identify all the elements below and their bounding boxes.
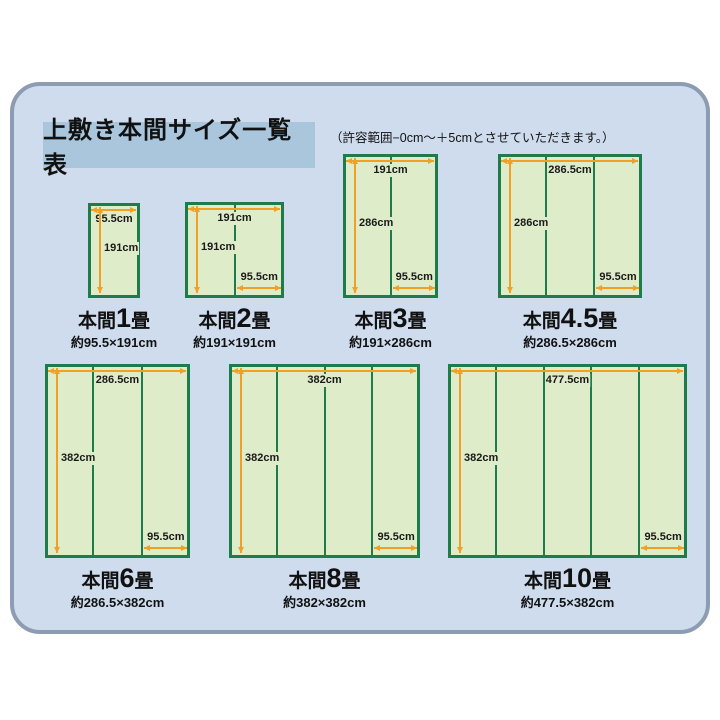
height-arrow <box>354 158 356 293</box>
mat-size-label: 約382×382cm <box>283 592 366 611</box>
mat-size-label: 約95.5×191cm <box>71 332 157 351</box>
height-arrow <box>509 158 511 293</box>
mat-name-number: 10 <box>562 563 592 593</box>
height-dim-label: 191cm <box>103 242 139 255</box>
width-dim-label: 477.5cm <box>545 374 590 387</box>
mat-name-number: 1 <box>116 303 131 333</box>
mat-name-prefix: 本間 <box>198 311 236 332</box>
height-dim-label: 382cm <box>244 452 280 465</box>
mat-name-suffix: 畳 <box>342 571 361 592</box>
mat-name-suffix: 畳 <box>252 311 271 332</box>
panel-width-arrow <box>374 547 417 549</box>
mat-name-suffix: 畳 <box>408 311 427 332</box>
mat-name-prefix: 本間 <box>81 571 119 592</box>
width-arrow <box>451 370 683 372</box>
width-dim-label: 191cm <box>372 164 408 177</box>
height-arrow <box>196 206 198 293</box>
mat-name-number: 8 <box>326 563 341 593</box>
mat-name-suffix: 畳 <box>131 311 150 332</box>
panel-width-arrow <box>393 287 436 289</box>
height-dim-label: 382cm <box>60 452 96 465</box>
panel-width-dim-label: 95.5cm <box>146 531 185 544</box>
width-dim-label: 382cm <box>306 374 342 387</box>
panel-width-dim-label: 95.5cm <box>643 531 682 544</box>
width-dim-label: 286.5cm <box>95 374 140 387</box>
height-dim-label: 191cm <box>200 241 236 254</box>
mat-name-number: 4.5 <box>561 303 599 333</box>
mat-name-prefix: 本間 <box>523 311 561 332</box>
panel-width-dim-label: 95.5cm <box>598 271 637 284</box>
mat-size-label: 約477.5×382cm <box>521 592 615 611</box>
panel-width-arrow <box>641 547 684 549</box>
mat-name-prefix: 本間 <box>524 571 562 592</box>
mat-name-number: 2 <box>236 303 251 333</box>
mat-divider <box>590 366 592 556</box>
mat-size-label: 約191×191cm <box>193 332 276 351</box>
mat-divider <box>638 366 640 556</box>
mat-divider <box>371 366 373 556</box>
height-arrow <box>240 368 242 553</box>
panel-width-arrow <box>144 547 187 549</box>
height-dim-label: 286cm <box>513 217 549 230</box>
size-chart-image: 上敷き本間サイズ一覧表 （許容範囲−0cm～＋5cmとさせていただきます。） 9… <box>0 0 720 720</box>
mat-divider <box>141 366 143 556</box>
mat-name-suffix: 畳 <box>135 571 154 592</box>
height-dim-label: 286cm <box>358 217 394 230</box>
width-arrow <box>48 370 186 372</box>
height-dim-label: 382cm <box>463 452 499 465</box>
width-arrow <box>346 160 434 162</box>
tolerance-note: （許容範囲−0cm～＋5cmとさせていただきます。） <box>330 127 615 146</box>
mat-size-label: 約286.5×382cm <box>71 592 165 611</box>
panel-width-dim-label: 95.5cm <box>376 531 415 544</box>
height-arrow <box>99 207 101 293</box>
mat-divider <box>543 366 545 556</box>
mat-name-suffix: 畳 <box>592 571 611 592</box>
width-arrow <box>501 160 638 162</box>
width-dim-label: 191cm <box>216 212 252 225</box>
mat-size-label: 約286.5×286cm <box>523 332 617 351</box>
panel-width-dim-label: 95.5cm <box>240 271 279 284</box>
panel-width-arrow <box>596 287 639 289</box>
width-arrow <box>188 208 280 210</box>
mat-divider <box>593 156 595 296</box>
panel-width-dim-label: 95.5cm <box>395 271 434 284</box>
mat-name-prefix: 本間 <box>78 311 116 332</box>
width-dim-label: 286.5cm <box>547 164 592 177</box>
mat-divider <box>324 366 326 556</box>
mat-name-prefix: 本間 <box>288 571 326 592</box>
chart-title: 上敷き本間サイズ一覧表 <box>43 122 315 168</box>
panel-width-arrow <box>237 287 282 289</box>
width-arrow <box>232 370 416 372</box>
height-arrow <box>459 368 461 553</box>
height-arrow <box>56 368 58 553</box>
mat-name-number: 6 <box>119 563 134 593</box>
mat-size-label: 約191×286cm <box>349 332 432 351</box>
mat-name-number: 3 <box>392 303 407 333</box>
mat-name-prefix: 本間 <box>354 311 392 332</box>
mat-name-suffix: 畳 <box>598 311 617 332</box>
